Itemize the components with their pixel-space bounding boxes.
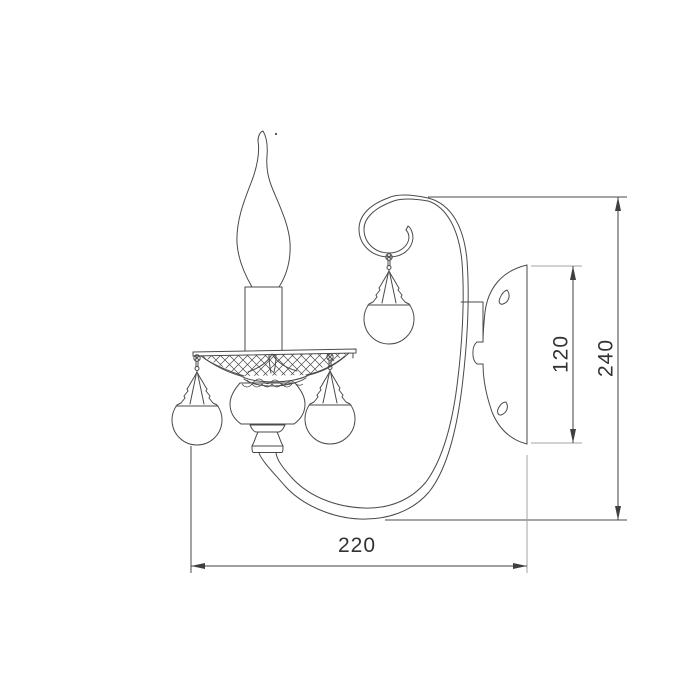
arm-mount-knob xyxy=(473,342,483,364)
arrowhead-up xyxy=(615,197,621,211)
arrowhead-left xyxy=(191,563,205,569)
dimension-label-width: 220 xyxy=(338,534,376,557)
wall-sconce-dimension-drawing: 240 120 220 xyxy=(0,0,700,700)
arrowhead-up xyxy=(570,266,576,280)
dimension-overall-height: 240 xyxy=(385,197,627,520)
dimension-width: 220 xyxy=(191,446,527,573)
arrowhead-right xyxy=(513,563,527,569)
dimension-label-backplate-height: 120 xyxy=(550,335,573,373)
dimension-backplate-height: 120 xyxy=(531,266,582,443)
crystal-pendant-scroll xyxy=(364,254,414,344)
screw-hole-bottom xyxy=(498,402,508,415)
arrowhead-down xyxy=(615,506,621,520)
candle-sleeve xyxy=(245,287,282,351)
wall-backplate xyxy=(461,265,527,444)
technical-drawing-canvas: 240 120 220 xyxy=(0,0,700,700)
crystal-pendant-left xyxy=(172,355,222,445)
arm-bracket xyxy=(461,302,483,342)
candle-bulb xyxy=(237,131,290,287)
dimension-label-overall-height: 240 xyxy=(595,339,618,377)
candle-neck xyxy=(250,425,285,453)
crystal-barrel xyxy=(230,383,305,424)
arrowhead-down xyxy=(570,429,576,443)
screw-hole-top xyxy=(499,290,509,304)
